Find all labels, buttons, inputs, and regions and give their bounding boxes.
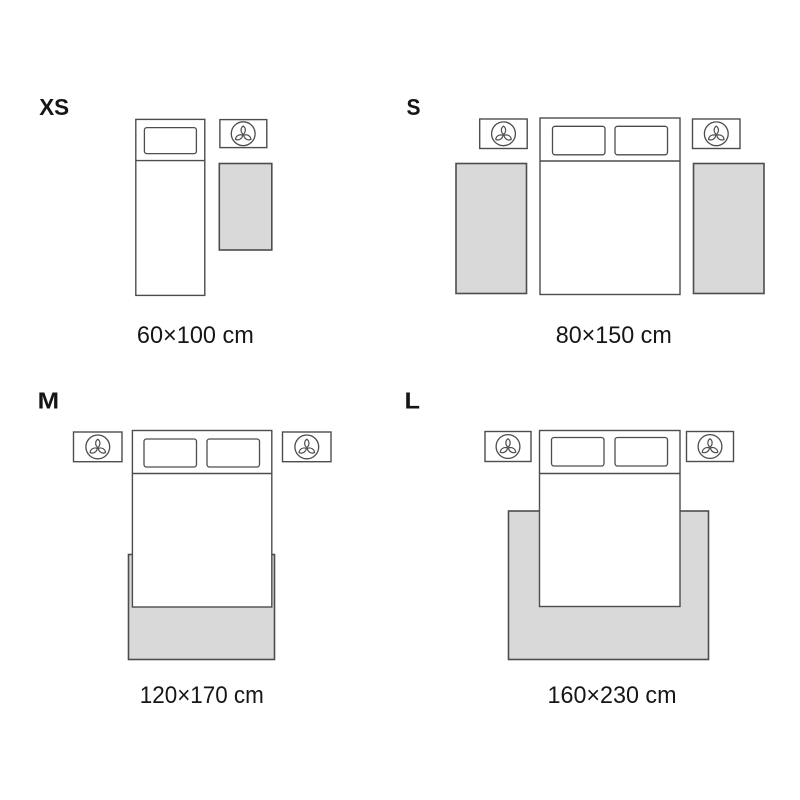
- svg-text:120×170 cm: 120×170 cm: [140, 682, 264, 709]
- svg-text:M: M: [38, 388, 60, 414]
- svg-text:S: S: [407, 94, 421, 120]
- svg-text:160×230 cm: 160×230 cm: [548, 682, 677, 709]
- svg-text:80×150 cm: 80×150 cm: [556, 322, 672, 349]
- svg-text:60×100 cm: 60×100 cm: [137, 322, 254, 349]
- svg-text:L: L: [405, 388, 421, 414]
- svg-text:XS: XS: [39, 94, 69, 120]
